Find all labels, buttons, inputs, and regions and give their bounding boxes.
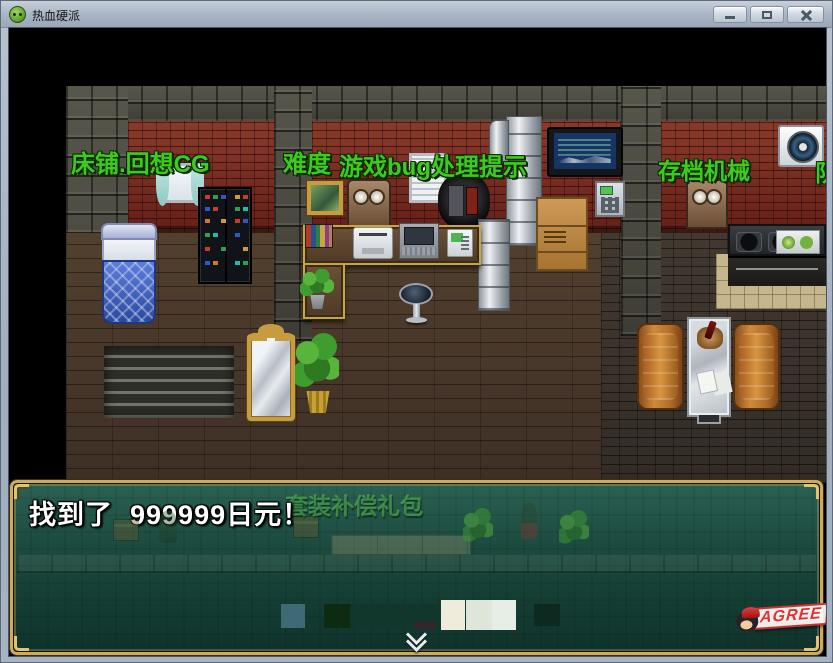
game-viewport[interactable]: 床铺.回想CG 难度 游戏bug处理提示 存档机械 队 套装补偿礼包 找到了 9… (9, 28, 826, 656)
wall-tv (547, 127, 623, 177)
mosaic-block (441, 600, 465, 630)
book-row (305, 224, 333, 248)
ghost-npc (521, 503, 537, 539)
app-icon (9, 6, 26, 23)
mosaic-block (281, 604, 305, 628)
ghost-plant (559, 509, 589, 547)
minimize-button[interactable] (713, 6, 747, 23)
mosaic-block (534, 604, 560, 626)
map-label-team-clipped: 队 (815, 154, 826, 188)
ghost-npc (159, 511, 177, 543)
close-button[interactable] (787, 6, 824, 23)
maximize-icon (762, 11, 772, 19)
map-label-bug-tips: 游戏bug处理提示 (339, 147, 527, 182)
bed-headboard (101, 223, 157, 240)
message-corner-ornament (14, 636, 29, 651)
hanging-plant-leaves (300, 269, 334, 297)
bed-quilt (102, 260, 156, 324)
stool-leg (413, 304, 420, 318)
window-title: 热血硬派 (32, 7, 80, 24)
ghost-plant (463, 507, 493, 545)
mosaic-block (466, 600, 492, 630)
stool-seat (399, 283, 433, 305)
ghost-chest (113, 519, 139, 541)
wall-picture (307, 181, 343, 215)
sofa-right (733, 323, 780, 410)
kitchen-stove (728, 224, 826, 256)
mosaic-block (492, 600, 516, 630)
tv-screen (554, 133, 616, 169)
maximize-button[interactable] (750, 6, 784, 23)
close-icon (800, 9, 812, 21)
mascot-beret (741, 606, 760, 618)
titlebar[interactable]: 热血硬派 (1, 1, 832, 28)
wine-bottle (704, 320, 717, 339)
stone-wall-top (66, 86, 826, 123)
cardboard-box (536, 197, 588, 271)
message-corner-ornament (804, 484, 819, 499)
printer (353, 227, 393, 259)
mosaic-block (324, 604, 350, 628)
save-machine-right (686, 179, 728, 229)
stone-column-b (621, 86, 661, 336)
glass-table (687, 317, 731, 417)
air-duct-lower (478, 219, 510, 311)
security-keypad (595, 181, 625, 217)
shelf-unit (198, 187, 252, 284)
glass-table-base (697, 415, 721, 424)
map-label-save-machine: 存档机械 (658, 152, 750, 186)
map-label-difficulty: 难度 (283, 144, 331, 179)
ghost-bench (331, 535, 471, 555)
shelf-items (205, 195, 210, 199)
sofa-left (637, 323, 684, 410)
map-label-bed-cg: 床铺.回想CG (71, 144, 210, 179)
ghost-chest (293, 516, 319, 538)
minimize-icon (725, 16, 735, 19)
continue-indicator (403, 627, 433, 653)
telephone (447, 229, 473, 257)
cutting-board (776, 230, 820, 254)
stove-burner (736, 232, 762, 252)
bed-sheet (102, 240, 156, 262)
staircase (104, 346, 234, 418)
tall-plant-leaves (295, 331, 339, 393)
stool-base (406, 317, 427, 323)
mascot-icon (733, 606, 761, 632)
ornate-mirror (247, 333, 295, 421)
save-machine-left (347, 179, 391, 227)
kitchen-cabinet (728, 256, 826, 286)
message-window[interactable]: 套装补偿礼包 找到了 999999日元！ (10, 480, 823, 655)
ghost-floor-band (17, 555, 816, 573)
message-corner-ornament (804, 636, 819, 651)
laptop-computer (399, 223, 439, 259)
message-corner-ornament (14, 484, 29, 499)
watermark-text: AGREE (753, 603, 826, 630)
app-window: 热血硬派 (0, 0, 833, 663)
